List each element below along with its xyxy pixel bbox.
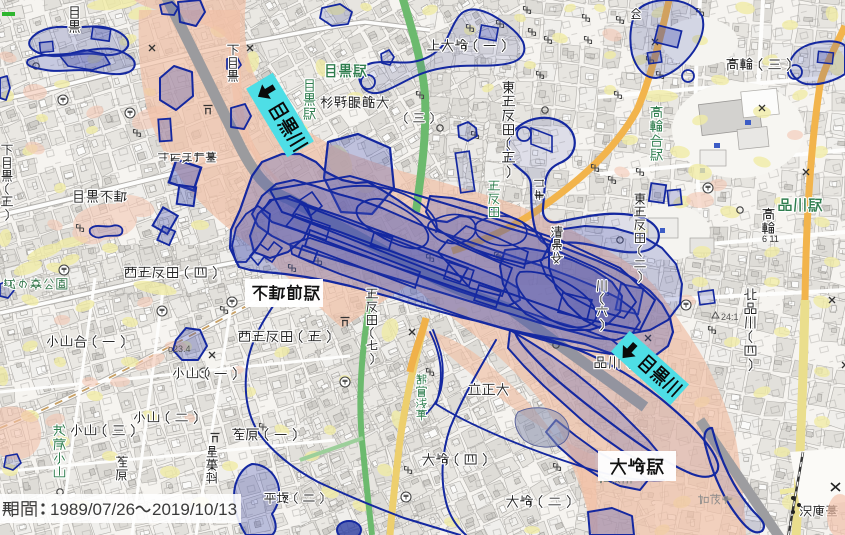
svg-text:o23.4: o23.4: [168, 344, 191, 354]
svg-text:24:1: 24:1: [721, 312, 739, 322]
svg-text:2019/10/13: 2019/10/13: [152, 500, 237, 519]
svg-text:6 11: 6 11: [762, 234, 779, 244]
svg-text:1989/07/26: 1989/07/26: [50, 500, 135, 519]
